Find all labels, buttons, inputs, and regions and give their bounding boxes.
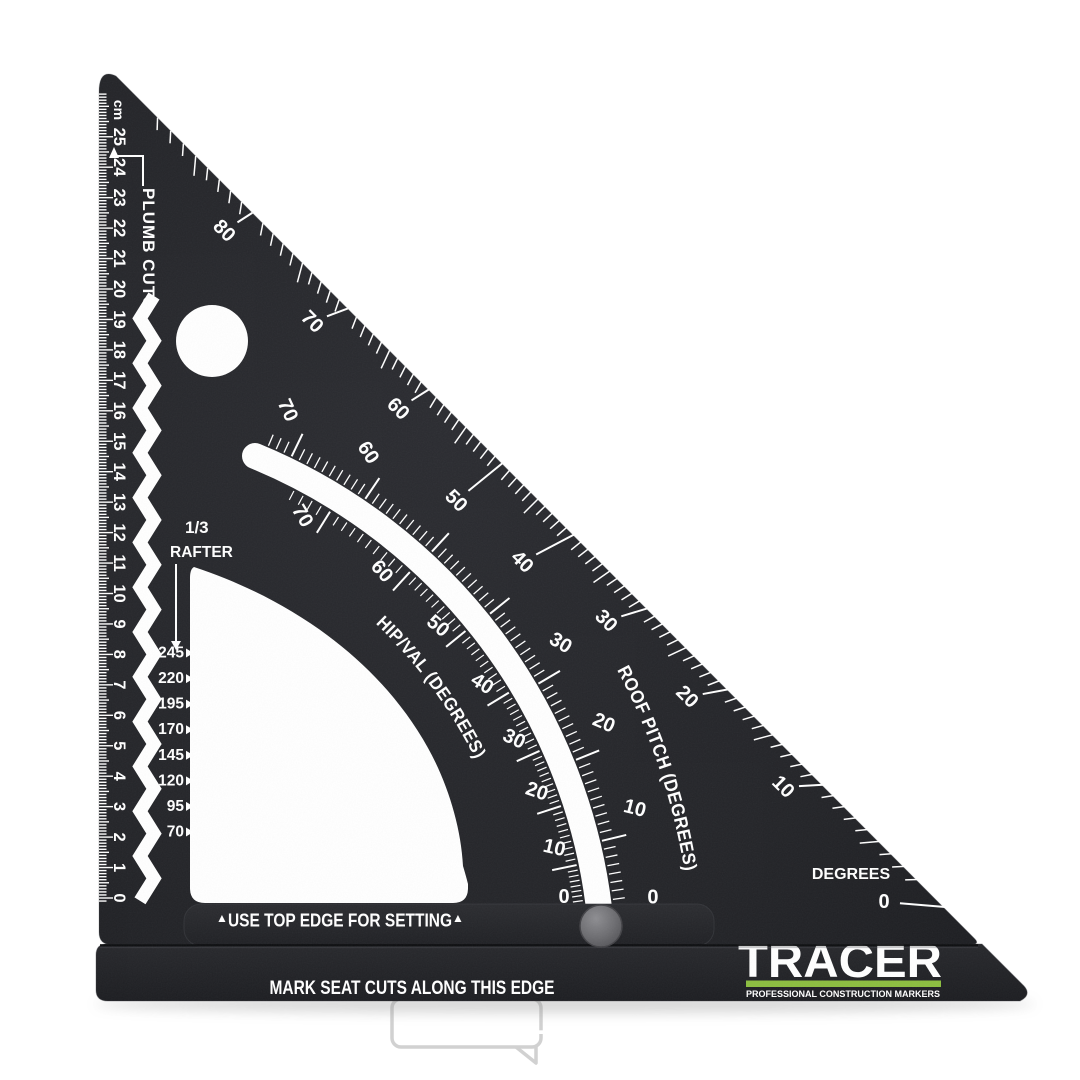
watermark-word-3: CZ — [626, 1012, 683, 1047]
watermark-word-1: SVÁŘEČKY — [406, 1011, 530, 1047]
watermark-word-2: OBCHOD. — [550, 1012, 622, 1047]
scene-svg: SVÁŘEČKY - OBCHOD. CZ MARK SEAT CUTS ALO… — [0, 0, 1080, 1080]
watermark-sep: - — [534, 1012, 544, 1047]
speed-square-product-photo: SVÁŘEČKY - OBCHOD. CZ MARK SEAT CUTS ALO… — [0, 0, 1080, 1080]
